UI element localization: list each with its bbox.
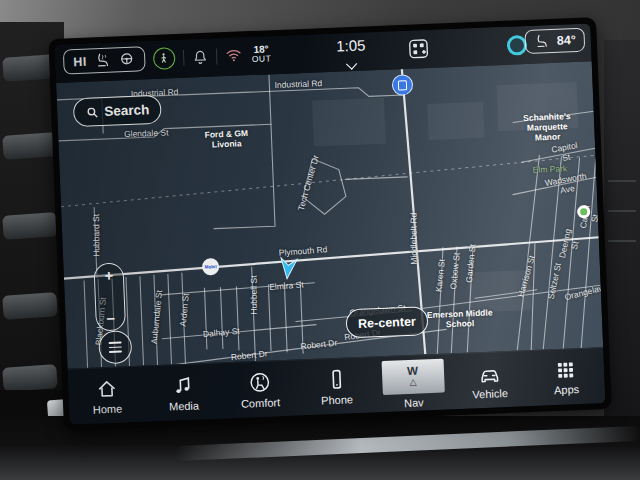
heated-steering-wheel-icon (117, 51, 135, 69)
tab-apps[interactable]: Apps (527, 348, 606, 407)
pedestrian-alert-icon (152, 47, 175, 70)
zoom-out-button[interactable]: − (106, 311, 115, 326)
chevron-down-icon (346, 58, 357, 69)
seat-icon (534, 33, 551, 50)
gas-station-label: Mobil (205, 264, 217, 269)
street-label: Middlebelt Rd (408, 213, 418, 265)
compass-heading: W (407, 365, 418, 377)
search-button[interactable]: Search (73, 95, 162, 128)
home-icon (95, 377, 119, 401)
tab-home[interactable]: Home (68, 367, 147, 425)
dashboard-photo: HI (0, 0, 640, 480)
comfort-icon (248, 370, 272, 394)
apps-icon (555, 359, 577, 381)
navigation-map[interactable]: Industrial RdIndustrial RdGlendale StFor… (56, 61, 603, 368)
wifi-icon (224, 47, 242, 63)
passenger-temp: 84° (557, 33, 576, 48)
place-label: Schanhite's Marquette Manor (523, 111, 572, 143)
place-label: Emerson Middle School (427, 307, 493, 330)
clock[interactable]: 1:05 (323, 36, 380, 73)
recenter-button[interactable]: Re-center (345, 306, 428, 338)
phone-icon (324, 367, 348, 391)
heading-arrow-icon: △ (409, 378, 416, 387)
vehicle-icon (476, 361, 502, 385)
apps-grid-icon[interactable] (407, 37, 431, 61)
tab-phone[interactable]: Phone (297, 357, 376, 416)
street-label: Glendale St (124, 127, 169, 139)
infotainment-screen: HI (55, 23, 606, 424)
climate-driver-panel[interactable]: HI (63, 46, 145, 74)
tab-vehicle[interactable]: Vehicle (450, 351, 529, 410)
tab-nav[interactable]: W △ Nav (374, 354, 453, 413)
street-label: Elm Park (533, 163, 568, 175)
tab-media[interactable]: Media (144, 364, 223, 423)
outside-temperature: 18° OUT (251, 44, 271, 64)
heated-seat-icon (93, 52, 111, 70)
tab-comfort[interactable]: Comfort (221, 360, 300, 419)
media-icon (171, 374, 195, 398)
climate-temp-label: HI (73, 54, 87, 69)
notification-bell-icon[interactable] (191, 48, 208, 65)
search-icon (85, 105, 100, 120)
climate-passenger-panel[interactable]: 84° (524, 28, 585, 54)
search-label: Search (104, 102, 150, 119)
place-label: Ford & GM Livonia (204, 128, 248, 150)
street-label: Industrial Rd (274, 78, 322, 90)
street-label: Hubbard St (91, 214, 101, 257)
infotainment-screen-bezel: HI (48, 17, 611, 431)
zoom-control[interactable]: + − (93, 262, 126, 331)
compass-widget: W △ (381, 358, 444, 394)
recenter-label: Re-center (358, 314, 416, 330)
zoom-in-button[interactable]: + (104, 268, 113, 283)
vehicle-position-cursor (275, 256, 302, 286)
street-label: Hubbell St (249, 275, 259, 314)
